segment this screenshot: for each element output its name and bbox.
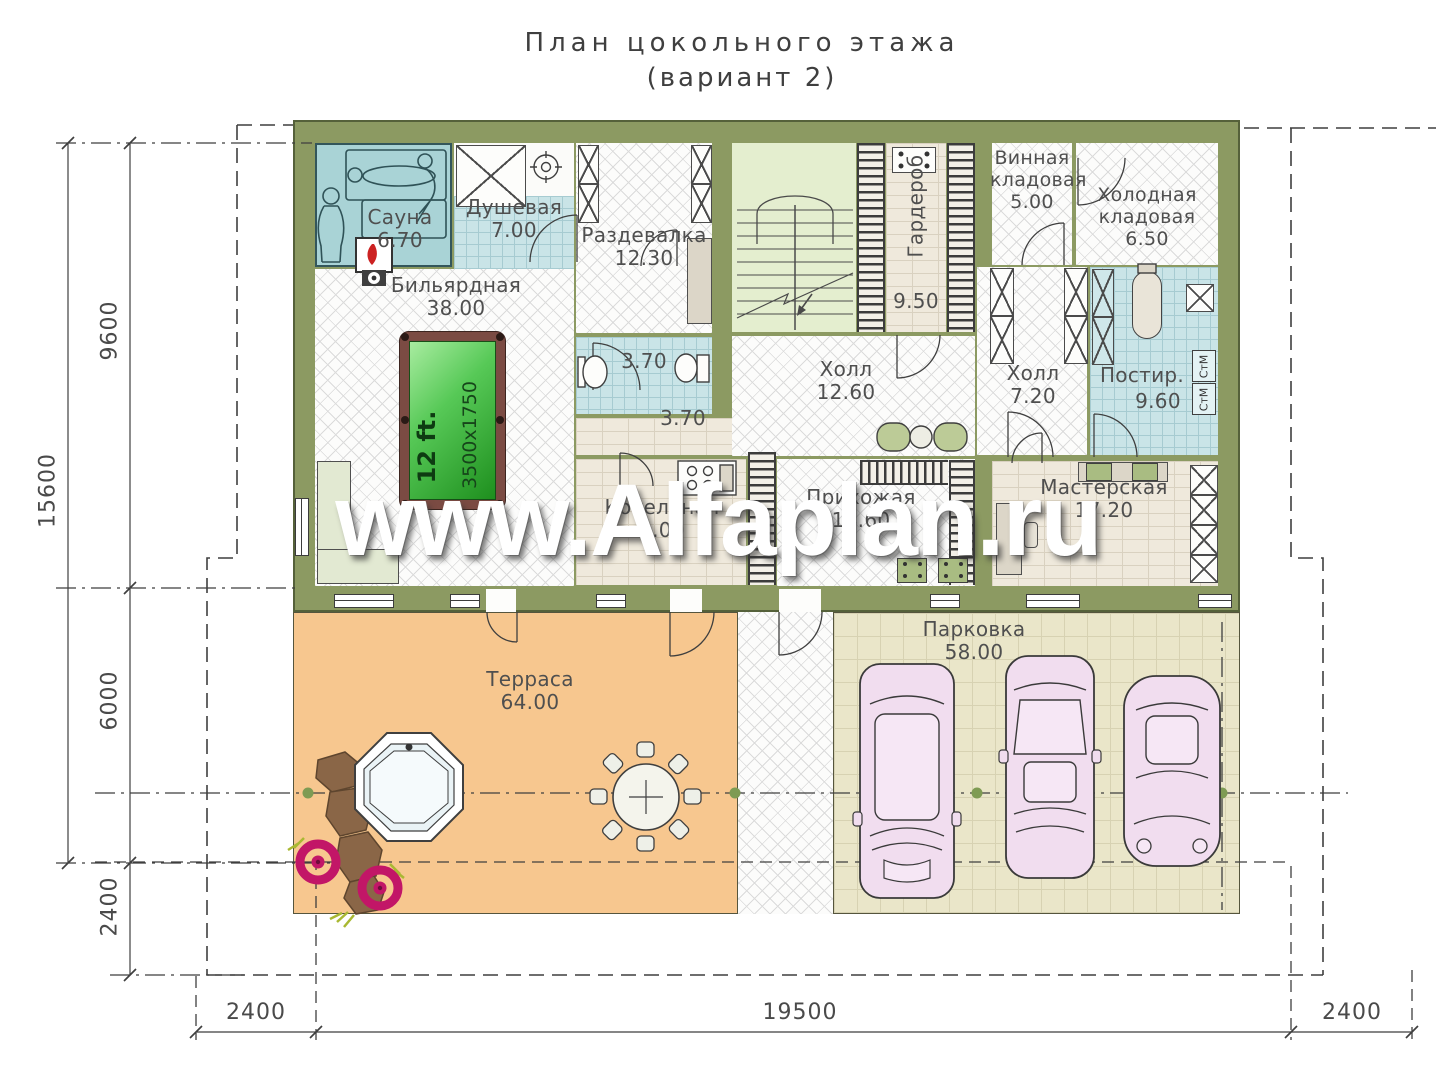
washer-label-2: СтМ: [1198, 387, 1211, 411]
door-opening-entrance: [779, 589, 821, 612]
terrace-area: [293, 612, 738, 914]
label-wardrobe-area: 9.50: [886, 290, 946, 313]
label-billiard: Бильярдная38.00: [356, 274, 556, 320]
label-hall-main: Холл12.60: [800, 358, 892, 404]
room-stairs: [732, 143, 856, 332]
dim-left-building: 9600: [98, 283, 123, 379]
window-5: [1026, 594, 1080, 608]
label-parking: Парковка58.00: [896, 618, 1052, 664]
hall-small-rack-4: [1064, 316, 1088, 364]
entrance-walkway: [738, 612, 833, 914]
workshop-rack-1: [1190, 465, 1218, 495]
dressing-rack-4: [691, 184, 712, 223]
label-laundry-name: Постир.: [1092, 364, 1192, 387]
page-title: План цокольного этажа (вариант 2): [462, 26, 1022, 96]
ironing-board: [1132, 271, 1162, 339]
workshop-rack-2: [1190, 495, 1218, 525]
hall-small-rack-2: [990, 316, 1014, 364]
label-hall-small: Холл7.20: [994, 362, 1072, 408]
window-6: [1198, 594, 1232, 608]
dim-left-terrace: 6000: [98, 653, 123, 749]
window-2: [450, 594, 480, 608]
dim-bottom-left: 2400: [206, 1000, 306, 1025]
dim-bottom-middle: 19500: [740, 1000, 860, 1025]
floor-plan-sheet: План цокольного этажа (вариант 2) СтМ: [0, 0, 1442, 1080]
laundry-rack-2: [1092, 317, 1114, 365]
title-line2: (вариант 2): [462, 61, 1022, 96]
label-wine-pantry: Виннаякладовая5.00: [990, 147, 1074, 213]
dim-left-offset: 2400: [98, 859, 123, 955]
label-shower: Душевая7.00: [458, 196, 570, 242]
workshop-rack-4: [1190, 555, 1218, 583]
window-3: [596, 594, 626, 608]
window-4: [930, 594, 960, 608]
dim-bottom-right: 2400: [1302, 1000, 1402, 1025]
washing-machine-1: СтМ: [1192, 350, 1216, 382]
wardrobe-rack-left: [857, 143, 885, 332]
watermark: www.Alfaplan.ru: [278, 462, 1158, 579]
title-line1: План цокольного этажа: [462, 26, 1022, 61]
dressing-rack-1: [578, 145, 599, 184]
label-laundry-area: 9.60: [1118, 390, 1198, 413]
dim-left-total: 15600: [36, 443, 61, 539]
hall-small-rack-1: [990, 268, 1014, 316]
door-opening-terrace-2: [670, 589, 702, 612]
window-1: [334, 594, 394, 608]
laundry-rack-1: [1092, 269, 1114, 317]
hall-small-rack-3: [1064, 268, 1088, 316]
label-bathroom: 3.70: [608, 350, 680, 373]
washer-label-1: СтМ: [1198, 354, 1211, 378]
wardrobe-rack-right: [947, 143, 975, 332]
label-wardrobe-name: Гардероб: [904, 158, 927, 258]
label-dressing: Раздевалка12.30: [578, 224, 710, 270]
label-sauna: Сауна6.70: [352, 206, 448, 252]
label-cold-pantry: Холоднаякладовая6.50: [1078, 184, 1216, 250]
dressing-rack-3: [691, 145, 712, 184]
label-terrace: Терраса64.00: [452, 668, 608, 714]
dressing-rack-2: [578, 184, 599, 223]
label-corridor: 3.70: [645, 407, 721, 430]
laundry-hamper: [1186, 284, 1214, 312]
workshop-rack-3: [1190, 525, 1218, 555]
door-opening-terrace-1: [486, 589, 516, 612]
